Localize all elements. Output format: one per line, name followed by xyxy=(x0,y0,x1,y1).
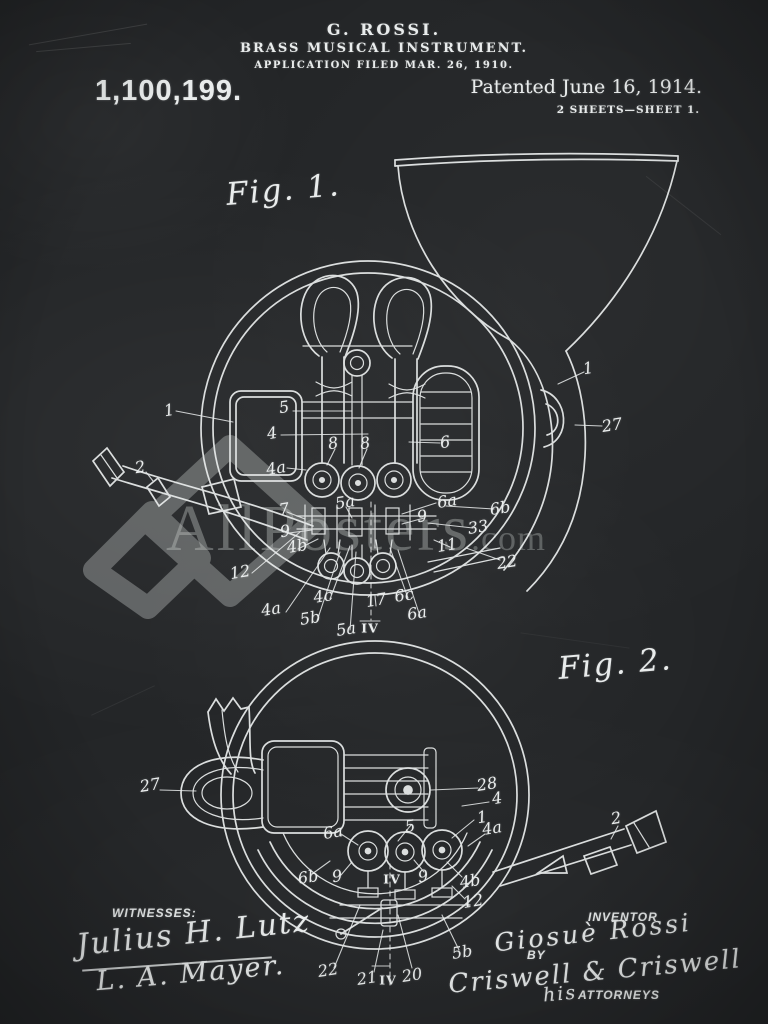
patent-drawing xyxy=(0,0,768,1024)
patent-poster: AllPosters.com xyxy=(0,0,768,1024)
figure-2-leader-lines xyxy=(160,788,618,985)
figure-1-drawing xyxy=(93,154,678,595)
figure-2-drawing xyxy=(181,641,666,949)
